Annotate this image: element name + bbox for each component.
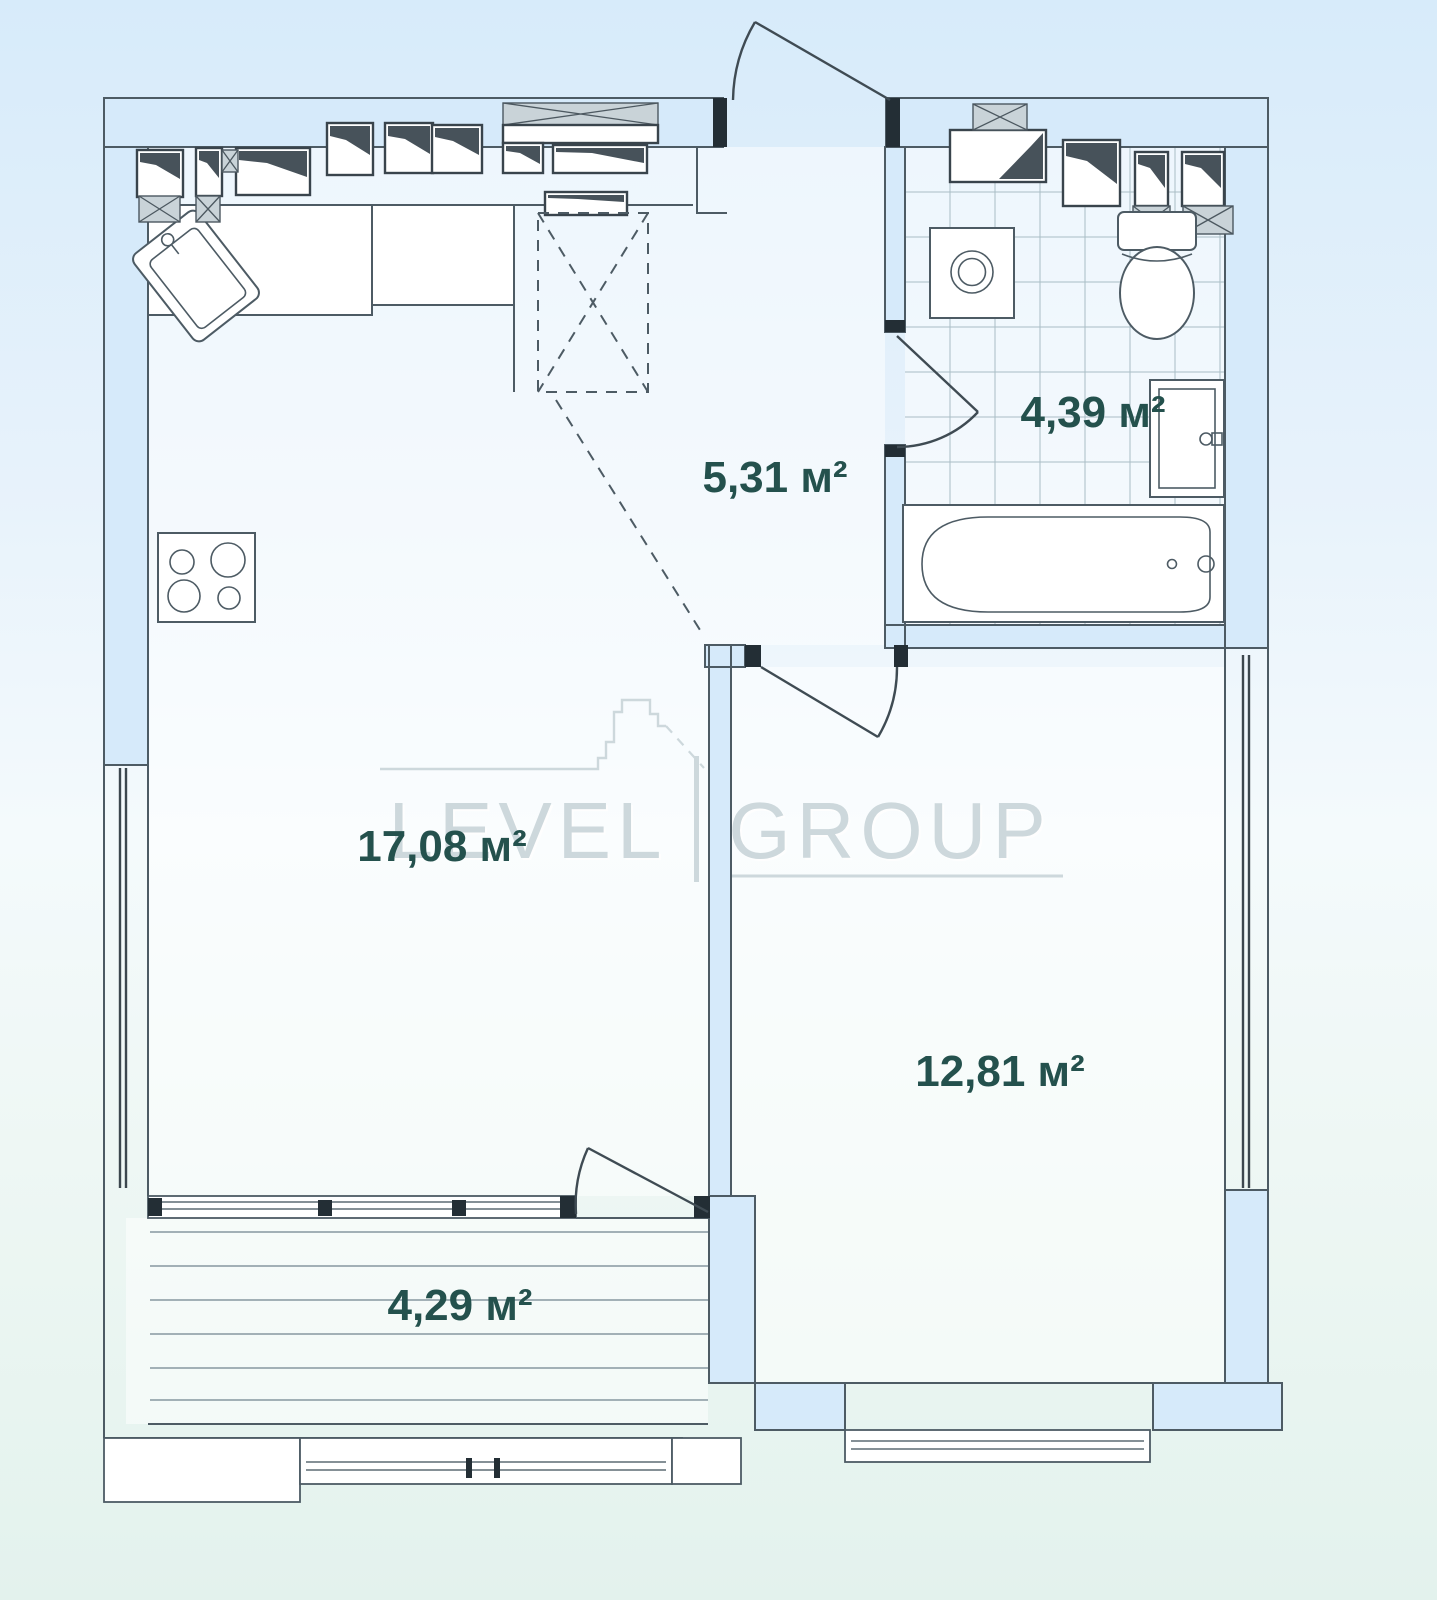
door-swing-arc	[733, 22, 755, 100]
window-frame	[845, 1430, 1150, 1462]
parapet-mullion	[494, 1458, 500, 1478]
balcony-parapet	[104, 1438, 741, 1502]
label-kitchen-living: 17,08 м²	[357, 822, 527, 871]
watermark-group: GROUP	[728, 786, 1051, 875]
washing-machine	[930, 228, 1014, 318]
window-mullion	[148, 1198, 162, 1216]
label-balcony: 4,29 м²	[387, 1281, 532, 1330]
toilet-tank	[1118, 212, 1196, 250]
door-leaf	[755, 22, 890, 100]
bedroom-window	[845, 1430, 1150, 1462]
toilet	[1118, 212, 1196, 339]
floor-plan: LEVEL LEVEL GROUP GROUP	[0, 0, 1437, 1600]
door-jamb	[560, 1196, 576, 1218]
label-bathroom: 4,39 м²	[1020, 388, 1165, 437]
counter-side	[372, 205, 514, 305]
window-frame	[148, 1196, 576, 1218]
door-jamb	[885, 320, 905, 332]
door-jamb	[886, 98, 900, 147]
balcony-window-band	[148, 1196, 710, 1218]
door-jamb	[745, 645, 761, 667]
label-bedroom: 12,81 м²	[915, 1047, 1085, 1096]
watermark-divider	[694, 756, 699, 882]
door-jamb	[713, 98, 727, 147]
bathtub	[903, 505, 1224, 622]
parapet-mullion	[466, 1458, 472, 1478]
parapet-block	[672, 1438, 741, 1484]
cabinet	[503, 125, 658, 143]
parapet-window	[300, 1438, 672, 1484]
stove	[158, 533, 255, 622]
label-hallway: 5,31 м²	[702, 453, 847, 502]
washer-body	[930, 228, 1014, 318]
stove-body	[158, 533, 255, 622]
entrance-door	[713, 22, 900, 147]
parapet-block	[104, 1438, 300, 1502]
window-mullion	[318, 1200, 332, 1216]
window-mullion	[452, 1200, 466, 1216]
door-jamb	[894, 645, 908, 667]
